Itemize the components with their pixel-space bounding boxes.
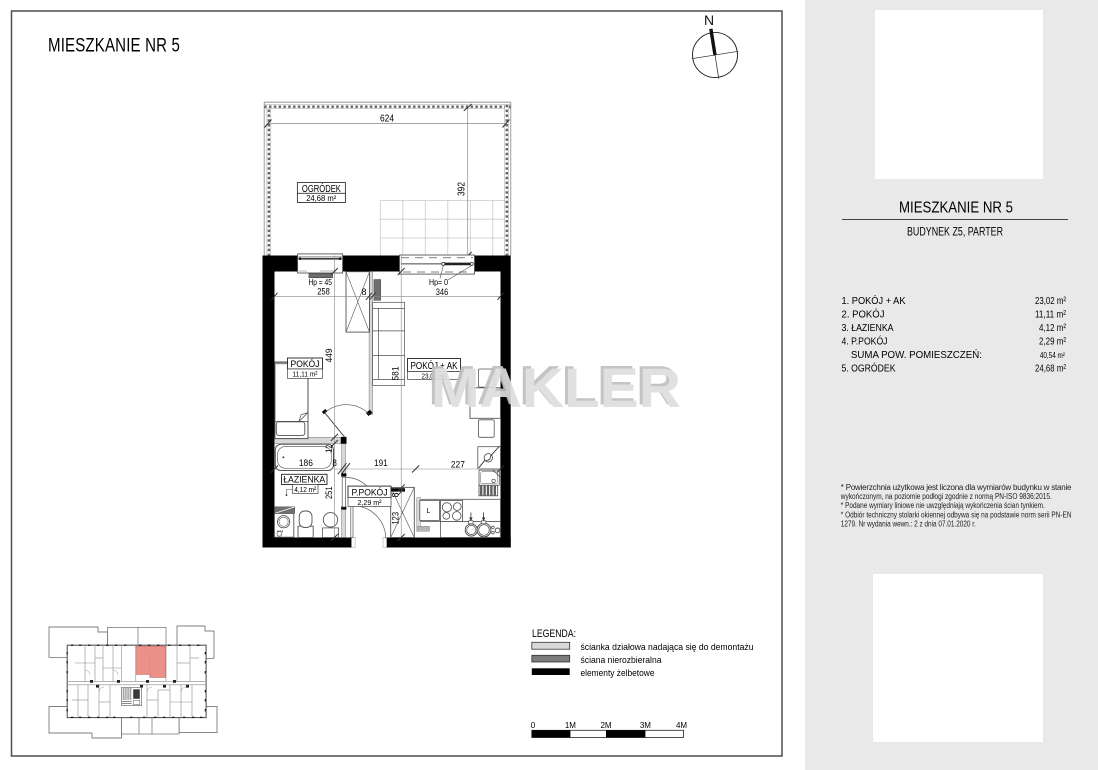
svg-text:186: 186 [299, 458, 313, 469]
svg-text:L: L [427, 508, 431, 515]
svg-text:* Powierzchnia użytkowa jest l: * Powierzchnia użytkowa jest liczona dla… [841, 483, 1072, 492]
svg-text:ściana nierozbieralna: ściana nierozbieralna [581, 655, 663, 666]
svg-text:4. P.POKÓJ: 4. P.POKÓJ [842, 334, 888, 347]
svg-text:8: 8 [390, 493, 401, 498]
svg-text:123: 123 [391, 512, 402, 525]
svg-text:Hp= 0: Hp= 0 [429, 278, 448, 287]
svg-text:POKÓJ: POKÓJ [291, 359, 320, 370]
svg-text:258: 258 [317, 287, 330, 298]
svg-text:1279. Nr wydania wewn.: 2 z dn: 1279. Nr wydania wewn.: 2 z dnia 07.01.2… [841, 520, 976, 529]
svg-text:40,54 m²: 40,54 m² [1040, 351, 1065, 360]
svg-text:wykończonym, na poziomie podło: wykończonym, na poziomie podłogi zgodnie… [840, 492, 1052, 501]
svg-text:2,29 m²: 2,29 m² [358, 498, 382, 507]
svg-text:24,68 m²: 24,68 m² [1035, 362, 1066, 374]
svg-text:1M: 1M [565, 721, 576, 730]
svg-text:2M: 2M [600, 721, 611, 730]
svg-text:2,29 m²: 2,29 m² [1039, 335, 1066, 347]
svg-text:MIESZKANIE NR 5: MIESZKANIE NR 5 [48, 36, 180, 57]
svg-text:N: N [704, 12, 714, 28]
svg-text:3. ŁAZIENKA: 3. ŁAZIENKA [842, 322, 894, 334]
svg-text:449: 449 [324, 349, 335, 363]
svg-text:* Odbiór techniczny stolarki o: * Odbiór techniczny stolarki okiennej od… [841, 510, 1072, 519]
svg-text:* Podane wymiary liniowe nie u: * Podane wymiary liniowe nie uwzględniaj… [841, 501, 1045, 510]
svg-text:624: 624 [380, 114, 394, 125]
svg-text:581: 581 [391, 367, 402, 381]
svg-text:MAKLER: MAKLER [431, 356, 681, 419]
svg-text:MIESZKANIE NR 5: MIESZKANIE NR 5 [899, 200, 1013, 217]
svg-text:191: 191 [374, 458, 388, 469]
svg-text:2. POKÓJ: 2. POKÓJ [842, 307, 885, 320]
svg-text:P.POKÓJ: P.POKÓJ [352, 487, 388, 498]
svg-text:3M: 3M [640, 721, 651, 730]
svg-text:12: 12 [324, 445, 335, 453]
svg-text:4,12 m²: 4,12 m² [1039, 322, 1066, 334]
svg-text:ścianka działowa nadająca się: ścianka działowa nadająca się do demonta… [581, 642, 754, 653]
svg-text:BUDYNEK Z5, PARTER: BUDYNEK Z5, PARTER [907, 227, 1003, 239]
svg-text:5. OGRÓDEK: 5. OGRÓDEK [842, 361, 896, 374]
svg-text:251: 251 [324, 487, 335, 500]
svg-text:227: 227 [451, 460, 465, 471]
svg-text:11,11 m²: 11,11 m² [293, 370, 318, 379]
svg-text:0: 0 [531, 721, 536, 730]
svg-text:4,12 m²: 4,12 m² [294, 485, 316, 494]
svg-text:23,02 m²: 23,02 m² [1035, 295, 1066, 307]
svg-text:LEGENDA:: LEGENDA: [532, 628, 576, 640]
svg-text:1. POKÓJ + AK: 1. POKÓJ + AK [842, 294, 906, 307]
svg-text:11,11 m²: 11,11 m² [1035, 308, 1066, 320]
svg-text:8: 8 [362, 287, 367, 298]
svg-text:8: 8 [332, 458, 337, 469]
svg-text:SUMA POW. POMIESZCZEŃ:: SUMA POW. POMIESZCZEŃ: [851, 348, 982, 361]
svg-text:24,68 m²: 24,68 m² [306, 194, 336, 203]
svg-text:4M: 4M [676, 721, 687, 730]
svg-text:elementy żelbetowe: elementy żelbetowe [581, 668, 655, 679]
svg-text:OGRÓDEK: OGRÓDEK [302, 184, 341, 195]
svg-text:392: 392 [457, 182, 468, 196]
